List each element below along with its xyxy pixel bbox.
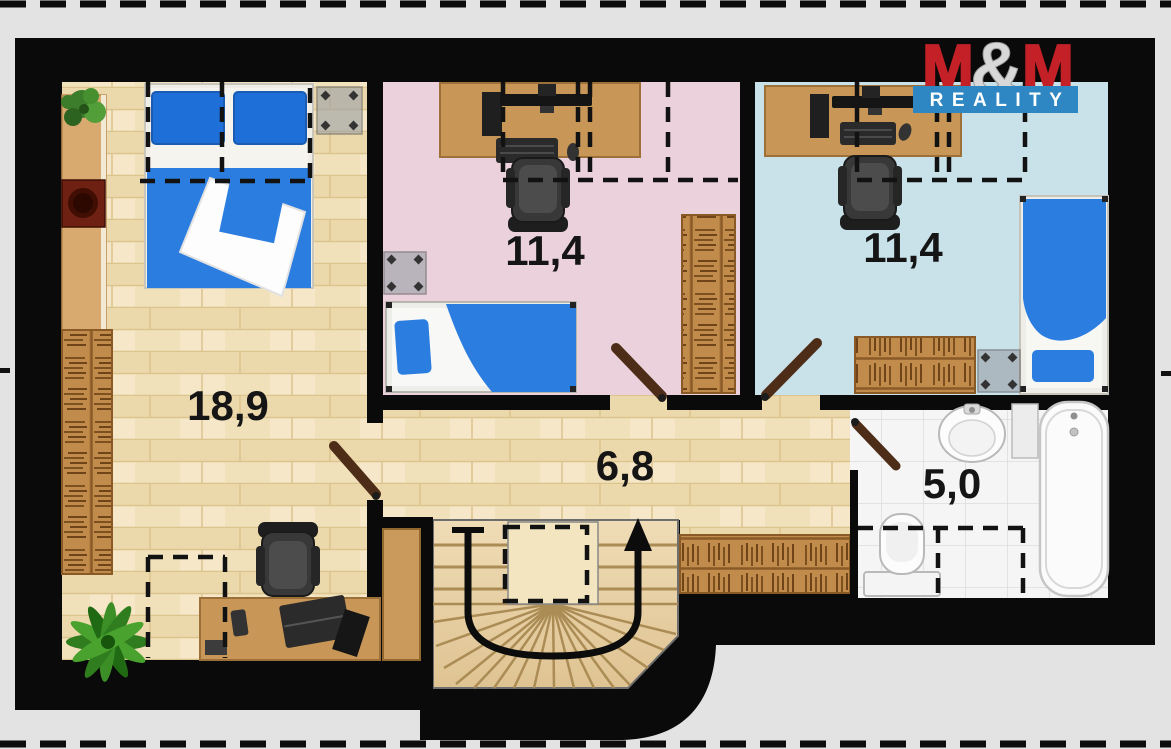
dimension-tick-right <box>1161 371 1171 376</box>
wall-bathroom-west <box>850 470 858 598</box>
area-label-blue-bedroom: 11,4 <box>863 224 943 271</box>
wardrobe-pink <box>682 215 735 393</box>
floor-plan-svg: 18,9 11,4 11,4 6,8 5,0 M M & REALITY <box>0 0 1171 749</box>
pc-tower <box>810 94 829 138</box>
logo-reality-text: REALITY <box>930 90 1071 111</box>
desk-pink <box>440 83 640 163</box>
pillow-left <box>152 92 224 144</box>
double-bed <box>145 84 313 296</box>
dimension-tick-left <box>0 368 10 373</box>
area-label-hallway: 6,8 <box>596 442 654 489</box>
blanket <box>1023 199 1106 341</box>
pillow <box>1032 350 1094 382</box>
floor-plan-page: 18,9 11,4 11,4 6,8 5,0 M M & REALITY <box>0 0 1171 749</box>
area-label-pink-bedroom: 11,4 <box>505 227 585 274</box>
office-chair-large-bedroom <box>256 522 320 596</box>
bath-shelf <box>1012 404 1038 458</box>
wall-pink-south <box>383 395 610 410</box>
glass-table-blue <box>978 350 1020 392</box>
wall-pink-blue <box>740 82 755 395</box>
office-chair-pink <box>506 158 570 232</box>
office-chair-blue <box>838 156 902 230</box>
bathtub <box>1040 402 1108 596</box>
glass-table-pink <box>384 252 426 294</box>
wall-mid-south <box>667 395 762 410</box>
wall-stair-west <box>420 517 433 692</box>
wall-large-pink <box>367 82 383 423</box>
pillow-right <box>234 92 306 144</box>
large-bedroom-wardrobe <box>62 330 112 574</box>
mm-reality-logo: M M & REALITY <box>913 27 1078 113</box>
single-bed-pink <box>386 302 576 392</box>
area-label-bathroom: 5,0 <box>923 460 981 507</box>
staircase <box>433 518 678 688</box>
area-label-large-bedroom: 18,9 <box>187 382 269 429</box>
keyboard <box>840 122 896 145</box>
pillow <box>394 319 432 375</box>
wardrobe-blue <box>855 337 975 393</box>
single-bed-blue <box>1020 196 1108 394</box>
desk-cabinet <box>383 529 420 660</box>
pc-tower <box>482 92 502 136</box>
stair-void <box>508 522 598 604</box>
side-table-red <box>62 180 105 227</box>
glass-nightstand <box>317 87 362 134</box>
hallway-wardrobe <box>680 535 850 593</box>
